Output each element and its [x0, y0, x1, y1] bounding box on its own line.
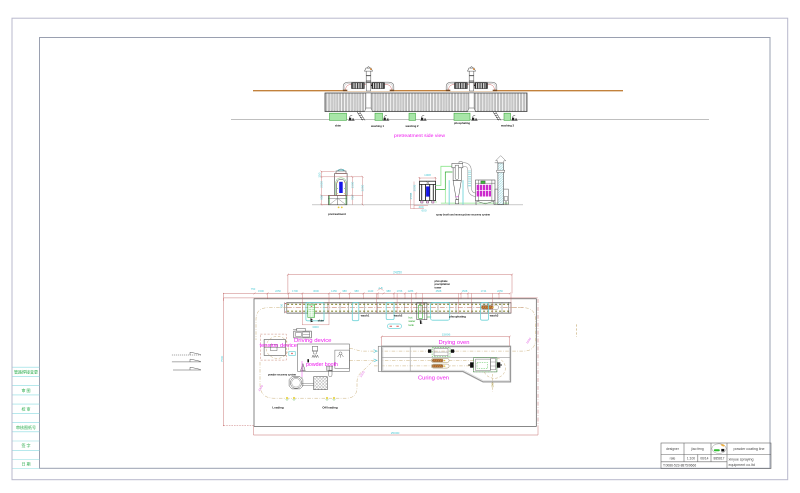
svg-text:2250: 2250	[275, 289, 281, 293]
svg-text:phosphating: phosphating	[454, 121, 470, 125]
svg-text:24250: 24250	[393, 271, 402, 275]
svg-text:3000: 3000	[313, 289, 319, 293]
svg-text:1:100: 1:100	[687, 457, 695, 461]
svg-text:Loading: Loading	[272, 405, 283, 409]
svg-text:washing 2: washing 2	[405, 124, 419, 128]
svg-text:7500: 7500	[220, 355, 224, 362]
svg-text:25000: 25000	[391, 431, 400, 435]
svg-text:designer: designer	[666, 447, 680, 451]
svg-text:1286: 1286	[408, 289, 414, 293]
svg-text:审 图: 审 图	[21, 387, 30, 393]
svg-text:250: 250	[317, 172, 321, 177]
svg-text:washing 1: washing 1	[370, 124, 384, 128]
svg-text:700: 700	[350, 195, 354, 200]
svg-text:1500: 1500	[258, 289, 264, 293]
svg-text:wash2: wash2	[393, 313, 403, 317]
svg-text:885817: 885817	[713, 457, 724, 461]
svg-text:日 期: 日 期	[21, 461, 30, 467]
svg-text:988: 988	[386, 289, 391, 293]
svg-text:1706: 1706	[397, 289, 403, 293]
svg-text:Driving device: Driving device	[294, 338, 332, 344]
svg-text:xinyue spraying: xinyue spraying	[729, 457, 754, 461]
svg-text:powder recovery system: powder recovery system	[268, 373, 296, 376]
svg-text:skim: skim	[318, 318, 325, 322]
svg-text:2350: 2350	[319, 181, 323, 188]
svg-text:750: 750	[251, 287, 256, 291]
svg-text:T:0086-523-8875/9666: T:0086-523-8875/9666	[663, 463, 696, 467]
svg-text:1700: 1700	[292, 289, 298, 293]
svg-text:rate: rate	[670, 457, 676, 461]
svg-text:phosphate: phosphate	[435, 279, 449, 283]
svg-text:600: 600	[421, 209, 426, 213]
svg-text:tension device: tension device	[260, 343, 298, 349]
svg-text:A-B: A-B	[378, 286, 383, 290]
svg-text:jiao feng: jiao feng	[690, 447, 704, 451]
svg-text:签 字: 签 字	[21, 442, 30, 448]
svg-text:wash3: wash3	[489, 313, 499, 317]
svg-text:988: 988	[354, 289, 359, 293]
svg-text:3250: 3250	[361, 184, 365, 191]
svg-text:2508: 2508	[409, 192, 413, 199]
svg-text:988: 988	[342, 289, 347, 293]
svg-text:Drying oven: Drying oven	[439, 340, 470, 346]
svg-text:2008: 2008	[413, 184, 417, 191]
svg-text:1008: 1008	[338, 168, 345, 172]
svg-text:校 审: 校 审	[21, 405, 30, 411]
svg-text:1443: 1443	[368, 289, 374, 293]
svg-text:powder booth: powder booth	[306, 362, 338, 368]
svg-text:1008: 1008	[424, 173, 431, 177]
svg-text:wash1: wash1	[360, 313, 370, 317]
svg-text:phosphating: phosphating	[449, 314, 466, 318]
svg-text:1500: 1500	[350, 181, 354, 188]
svg-text:precipitation: precipitation	[435, 282, 451, 286]
svg-text:3000: 3000	[312, 325, 319, 329]
svg-text:tower: tower	[435, 286, 442, 290]
svg-text:Off loading: Off loading	[322, 405, 337, 409]
svg-text:pretreatment side view: pretreatment side view	[394, 133, 446, 139]
svg-text:1456: 1456	[331, 289, 337, 293]
svg-text:1508: 1508	[462, 289, 468, 293]
svg-text:Curing oven: Curing oven	[418, 376, 449, 382]
svg-text:15806: 15806	[442, 332, 451, 336]
svg-text:管路焊接变更: 管路焊接变更	[14, 369, 38, 375]
svg-text:4508: 4508	[436, 289, 442, 293]
svg-text:2256: 2256	[497, 289, 503, 293]
svg-text:600: 600	[319, 195, 323, 200]
svg-text:spray booth and monocyclone re: spray booth and monocyclone recovery sys…	[436, 212, 491, 216]
svg-text:pretreatment: pretreatment	[328, 212, 346, 216]
svg-text:powder coating line: powder coating line	[734, 447, 765, 451]
svg-text:washing 3: washing 3	[500, 124, 514, 128]
svg-text:skim: skim	[335, 124, 342, 128]
svg-text:1744: 1744	[481, 289, 487, 293]
svg-text:06/14: 06/14	[700, 457, 708, 461]
svg-text:审核图纸号: 审核图纸号	[16, 424, 36, 430]
svg-text:tank: tank	[409, 323, 415, 327]
svg-text:equipment co.ltd: equipment co.ltd	[729, 463, 755, 467]
